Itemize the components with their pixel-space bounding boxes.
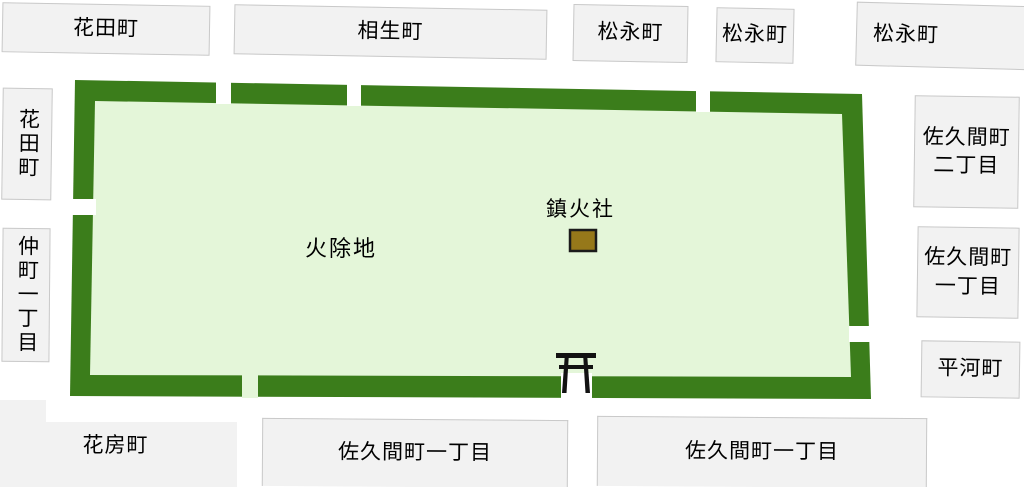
- town-block-label: 佐久間町一丁目: [920, 243, 1017, 301]
- shrine-marker: [570, 230, 596, 251]
- map-canvas: [0, 0, 1024, 487]
- town-block-matsunagacho-3: 松永町: [855, 2, 1024, 71]
- town-block-label: 佐久間町一丁目: [338, 439, 492, 468]
- town-block-matsunagacho-1: 松永町: [573, 4, 689, 63]
- town-block-label: 佐久間町一丁目: [685, 438, 839, 467]
- town-block-hanadacho-top: 花田町: [2, 2, 211, 56]
- embankment-gap-bottom-1: [242, 372, 258, 398]
- town-block-label: 松永町: [873, 20, 940, 50]
- embankment-gap-top-3: [696, 88, 710, 112]
- town-block-nakacho-itchome: 仲町一丁目: [1, 228, 50, 362]
- town-block-label: 平河町: [937, 355, 1003, 384]
- town-block-label: 佐久間町二丁目: [917, 123, 1017, 181]
- town-block-label: 松永町: [597, 19, 663, 48]
- firebreak-map: 花田町 相生町 松永町 松永町 松永町 花田町 仲町一丁目 佐久間町二丁目 佐久…: [0, 0, 1024, 487]
- town-block-label: 松永町: [722, 21, 789, 51]
- firebreak-field: [90, 101, 851, 377]
- firebreak-field-label: 火除地: [305, 231, 377, 263]
- town-block-hirakawacho: 平河町: [921, 340, 1021, 398]
- town-block-matsunagacho-2: 松永町: [715, 7, 794, 64]
- embankment-gap-top-2: [347, 82, 361, 106]
- town-block-label: 花田町: [73, 14, 139, 43]
- shrine-label: 鎮火社: [546, 193, 615, 223]
- town-block-label: 花田町: [12, 108, 41, 180]
- town-block-hanadacho-left: 花田町: [1, 88, 53, 201]
- town-block-sakumacho-itchome-right: 佐久間町一丁目: [916, 226, 1019, 318]
- town-block-aioicho: 相生町: [234, 4, 548, 59]
- town-block-label: 花房町: [83, 432, 149, 460]
- town-block-sakumacho-itchome-bottom-1: 佐久間町一丁目: [262, 418, 568, 487]
- town-block-label: 仲町一丁目: [11, 235, 40, 355]
- embankment-gap-right: [849, 326, 873, 342]
- embankment-gap-top-1: [216, 80, 231, 104]
- town-block-sakumacho-nichome: 佐久間町二丁目: [913, 95, 1020, 208]
- town-block-sakumacho-itchome-bottom-2: 佐久間町一丁目: [597, 416, 927, 487]
- embankment-gap-left: [71, 199, 96, 215]
- town-block-label: 相生町: [357, 17, 423, 46]
